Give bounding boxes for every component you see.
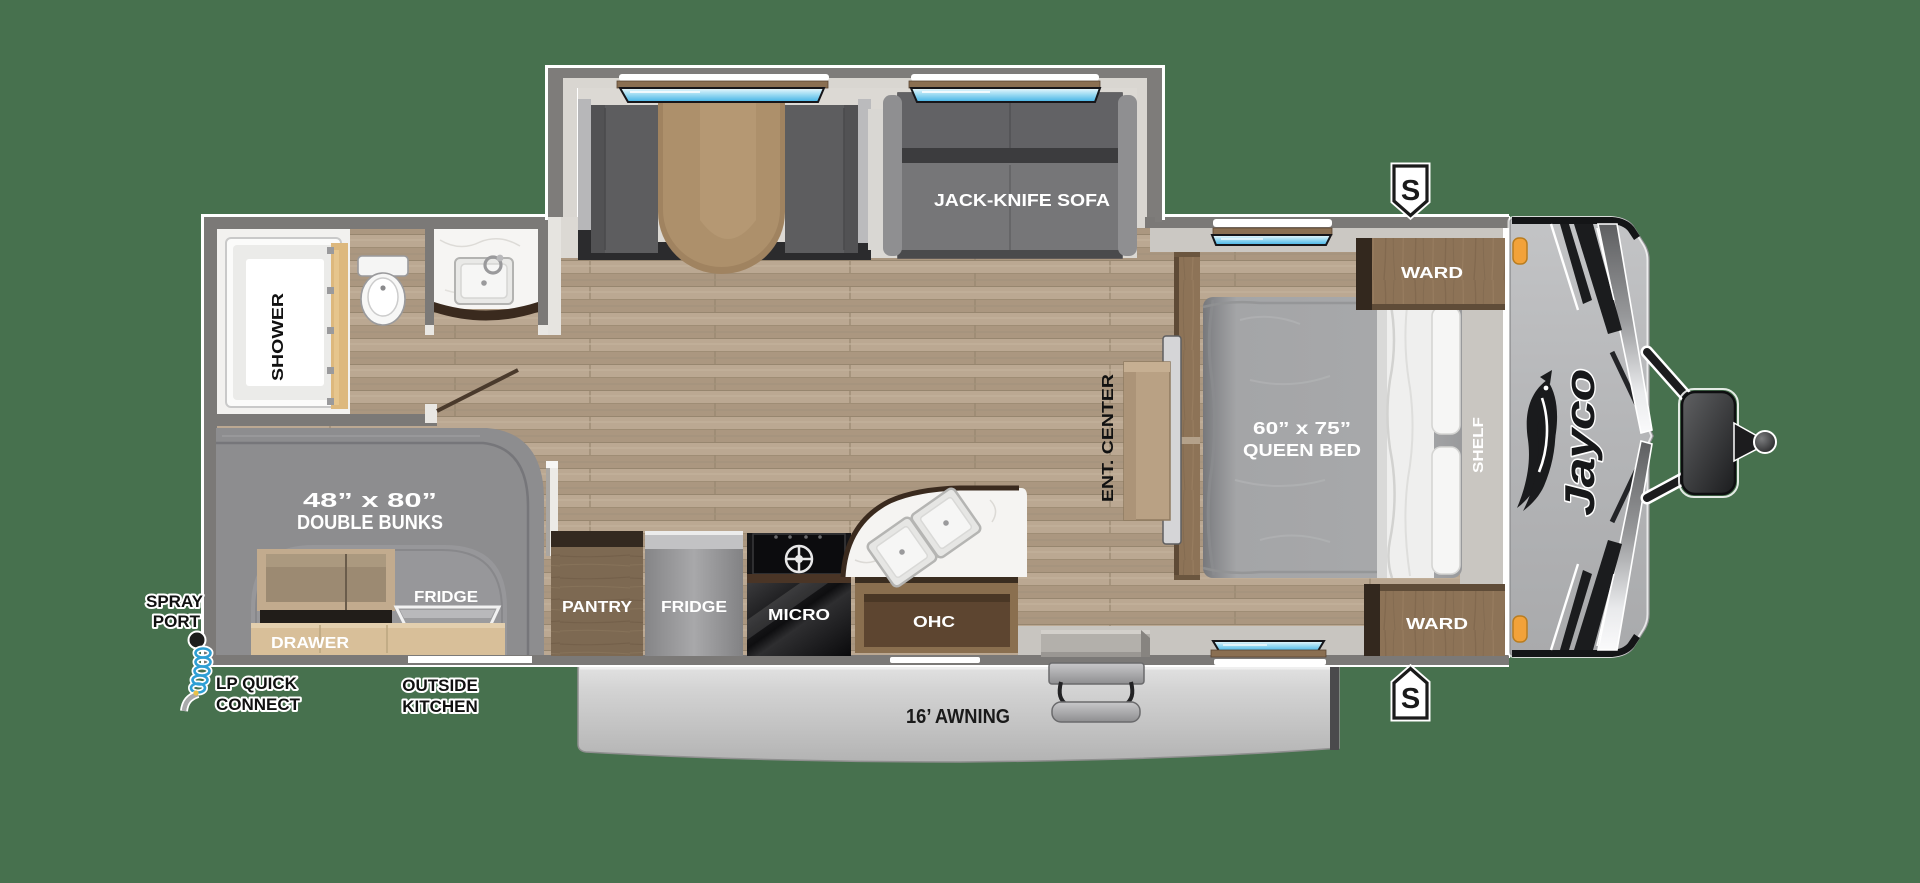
svg-text:KITCHEN: KITCHEN <box>402 697 478 716</box>
svg-text:FRIDGE: FRIDGE <box>414 589 478 606</box>
svg-text:MICRO: MICRO <box>768 607 830 624</box>
svg-text:60” x 75”: 60” x 75” <box>1253 418 1351 438</box>
svg-text:S: S <box>1401 683 1420 715</box>
svg-text:WARD: WARD <box>1401 265 1463 282</box>
svg-text:PORT: PORT <box>153 612 201 631</box>
svg-text:16’ AWNING: 16’ AWNING <box>906 706 1010 728</box>
svg-text:DRAWER: DRAWER <box>271 635 349 652</box>
svg-text:QUEEN BED: QUEEN BED <box>1243 440 1361 460</box>
svg-text:FRIDGE: FRIDGE <box>661 599 727 616</box>
svg-text:Jayco: Jayco <box>1556 370 1603 516</box>
svg-text:JACK-KNIFE SOFA: JACK-KNIFE SOFA <box>934 190 1110 210</box>
svg-text:SPRAY: SPRAY <box>146 592 204 611</box>
svg-text:OUTSIDE: OUTSIDE <box>402 676 478 695</box>
svg-text:PANTRY: PANTRY <box>562 599 632 616</box>
svg-text:LP QUICK: LP QUICK <box>216 674 298 693</box>
svg-text:WARD: WARD <box>1406 616 1468 633</box>
svg-text:ENT. CENTER: ENT. CENTER <box>1100 374 1117 502</box>
svg-text:DOUBLE BUNKS: DOUBLE BUNKS <box>297 512 443 534</box>
svg-text:OHC: OHC <box>913 614 956 631</box>
svg-text:SHOWER: SHOWER <box>270 293 287 381</box>
svg-text:S: S <box>1401 175 1420 207</box>
svg-text:CONNECT: CONNECT <box>216 695 301 714</box>
svg-text:48” x 80”: 48” x 80” <box>303 490 437 512</box>
svg-text:SHELF: SHELF <box>1471 417 1487 473</box>
